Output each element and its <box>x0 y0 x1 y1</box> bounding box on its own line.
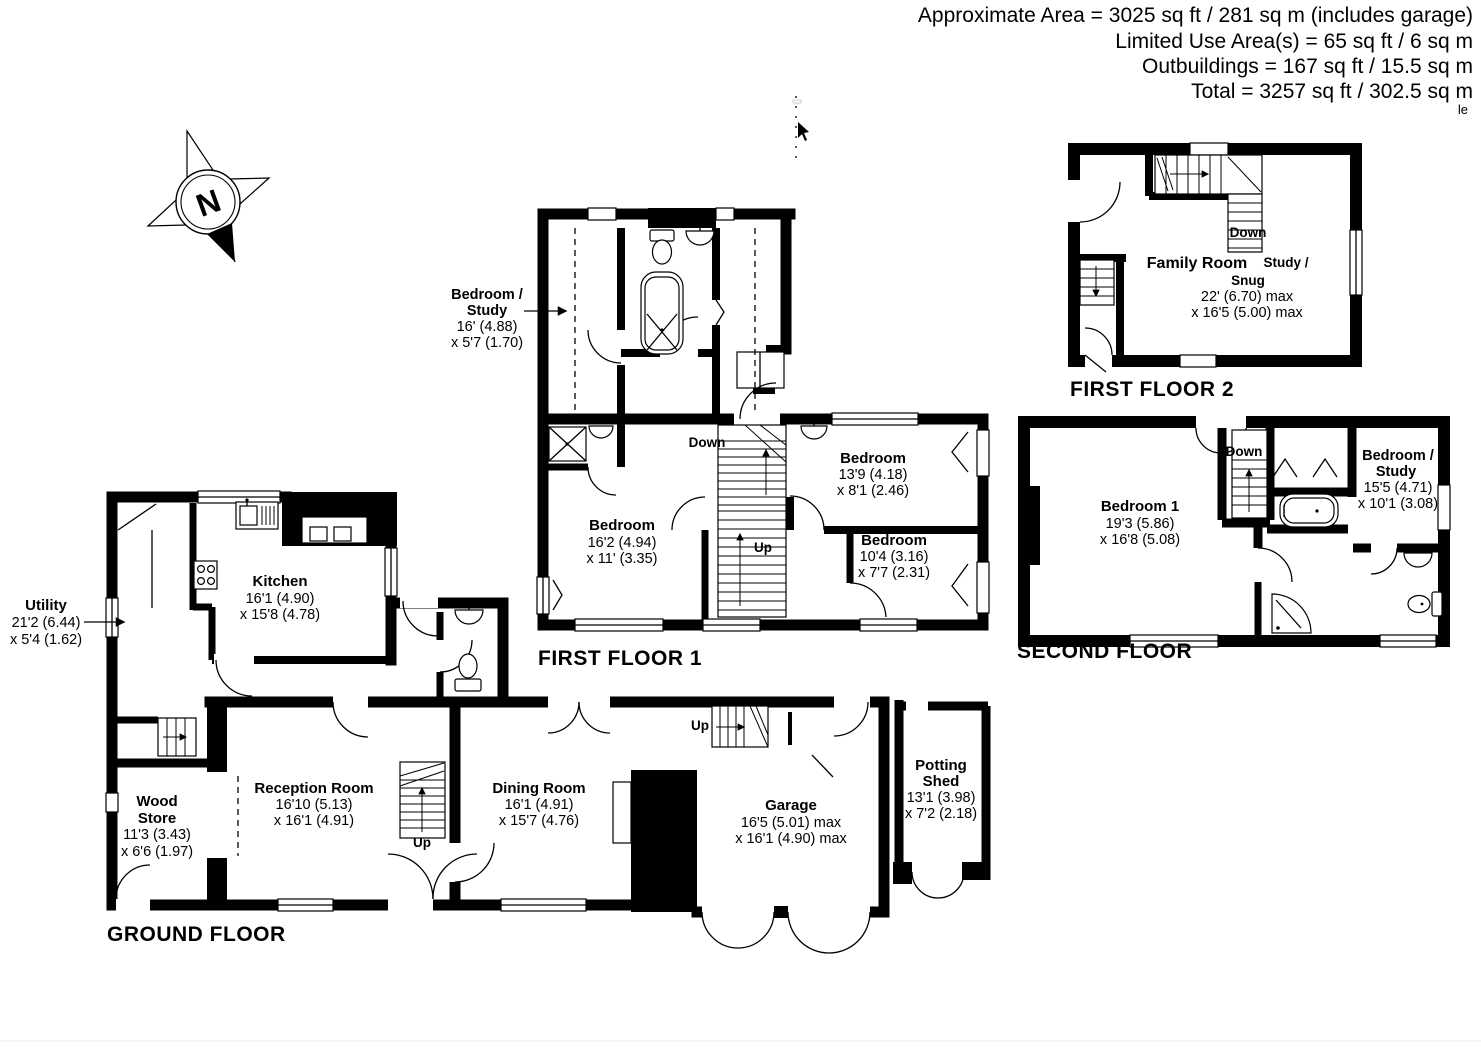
summary-line-2: Limited Use Area(s) = 65 sq ft / 6 sq m <box>1115 30 1473 53</box>
bath-icon <box>641 272 683 354</box>
stairs-label-down-ff2: Down <box>1230 225 1267 240</box>
room-label-garage-dim2: x 16'1 (4.90) max <box>735 831 847 847</box>
stairs-utility <box>158 718 196 756</box>
summary-line-4: Total = 3257 sq ft / 302.5 sq m <box>1191 80 1473 103</box>
first-floor-2-labels: Family Room Study / Snug 22' (6.70) max … <box>1070 225 1309 401</box>
room-label-reception-dim2: x 16'1 (4.91) <box>274 813 354 829</box>
label-ff2-family-name3: Snug <box>1231 273 1265 288</box>
label-sf-bedroom1-dim2: x 16'8 (5.08) <box>1100 532 1180 548</box>
second-floor-chimney-nib <box>1018 486 1040 565</box>
room-label-kitchen-dim2: x 15'8 (4.78) <box>240 607 320 623</box>
label-ff1-bedbr-dim1: 10'4 (3.16) <box>860 549 929 565</box>
wc-sink-icon <box>455 606 483 624</box>
room-label-utility-name: Utility <box>25 597 67 614</box>
label-ff1-bedbr-dim2: x 7'7 (2.31) <box>858 565 930 581</box>
floorplan-page: Approximate Area = 3025 sq ft / 281 sq m… <box>0 0 1481 1048</box>
kitchen-sink-icon <box>236 498 278 529</box>
floor-title-second: SECOND FLOOR <box>1017 640 1192 663</box>
label-ff1-bedleft-dim2: x 11' (3.35) <box>586 551 657 567</box>
sink-icon <box>589 426 613 438</box>
room-label-garage-name: Garage <box>765 797 817 814</box>
label-ff2-family-name2: Study / <box>1263 255 1308 270</box>
wc-toilet-icon <box>455 654 481 691</box>
first-floor-1-labels: Bedroom / Study 16' (4.88) x 5'7 (1.70) … <box>451 287 930 670</box>
room-label-woodstore-name1: Wood <box>136 793 177 810</box>
compass-icon: N <box>148 131 269 262</box>
cursor-artifact <box>793 96 809 158</box>
label-ff1-bedbr-name: Bedroom <box>861 532 927 549</box>
room-label-reception-name: Reception Room <box>254 780 373 797</box>
room-label-woodstore-dim1: 11'3 (3.43) <box>123 827 191 843</box>
room-label-woodstore-name2: Store <box>138 810 176 827</box>
label-ff2-family-dim1: 22' (6.70) max <box>1201 289 1294 305</box>
stairs-reception <box>400 762 445 838</box>
stairs-ff1 <box>718 425 786 617</box>
room-label-dining-name: Dining Room <box>492 780 585 797</box>
stairs-label-down-second: Down <box>1226 444 1263 459</box>
toilet-icon <box>650 230 674 264</box>
toilet-icon <box>1408 592 1442 616</box>
label-sf-bedstudy-name2: Study <box>1376 464 1416 480</box>
area-summary: Approximate Area = 3025 sq ft / 281 sq m… <box>918 4 1473 117</box>
label-ff2-family-name1: Family Room <box>1147 255 1247 272</box>
room-label-woodstore-dim2: x 6'6 (1.97) <box>121 844 193 860</box>
shower-icon <box>549 427 586 461</box>
room-label-utility-dim2: x 5'4 (1.62) <box>10 632 82 648</box>
room-label-garage-dim1: 16'5 (5.01) max <box>741 815 842 831</box>
floor-title-ff1: FIRST FLOOR 1 <box>538 647 702 670</box>
summary-line-3: Outbuildings = 167 sq ft / 15.5 sq m <box>1142 55 1473 78</box>
bath-icon <box>1280 494 1338 527</box>
sink-icon <box>686 227 714 245</box>
label-sf-bedstudy-dim1: 15'5 (4.71) <box>1364 480 1433 496</box>
label-ff1-bedstudy-dim2: x 5'7 (1.70) <box>451 335 523 351</box>
room-label-pottingshed-name2: Shed <box>923 773 960 790</box>
stairs-label-up-ff1: Up <box>754 540 772 555</box>
stairs-label-up-garage: Up <box>691 718 709 733</box>
label-ff1-bedleft-dim1: 16'2 (4.94) <box>588 535 657 551</box>
floorplan-drawing: Approximate Area = 3025 sq ft / 281 sq m… <box>0 0 1481 1048</box>
room-label-dining-dim2: x 15'7 (4.76) <box>499 813 579 829</box>
room-label-pottingshed-name1: Potting <box>915 757 967 774</box>
room-label-reception-dim1: 16'10 (5.13) <box>276 797 353 813</box>
room-label-utility-dim1: 21'2 (6.44) <box>12 615 81 631</box>
summary-line-1: Approximate Area = 3025 sq ft / 281 sq m… <box>918 4 1473 27</box>
stairs-label-up-reception: Up <box>413 835 431 850</box>
room-label-kitchen-name: Kitchen <box>252 573 307 590</box>
label-ff2-family-dim2: x 16'5 (5.00) max <box>1191 305 1303 321</box>
label-ff1-bedleft-name: Bedroom <box>589 517 655 534</box>
label-ff1-bedstudy-name1: Bedroom / <box>451 287 523 303</box>
label-sf-bedstudy-name1: Bedroom / <box>1362 448 1434 464</box>
room-label-pottingshed-dim1: 13'1 (3.98) <box>907 790 976 806</box>
bedroom-sink-icon <box>801 422 827 439</box>
room-label-kitchen-dim1: 16'1 (4.90) <box>246 591 315 607</box>
stairs-garage <box>712 706 768 747</box>
label-ff1-bedstudy-dim1: 16' (4.88) <box>457 319 518 335</box>
wardrobe-chevron-marks <box>1273 459 1337 477</box>
stairs-label-down-ff1: Down <box>689 435 726 450</box>
label-sf-bedstudy-dim2: x 10'1 (3.08) <box>1358 496 1438 512</box>
page-edge-artifact <box>0 1040 1481 1042</box>
room-label-dining-dim1: 16'1 (4.91) <box>505 797 574 813</box>
floor-title-ground: GROUND FLOOR <box>107 923 286 946</box>
second-floor-labels: Bedroom 1 19'3 (5.86) x 16'8 (5.08) Bedr… <box>1017 444 1438 663</box>
watermark-fragment: le <box>1458 102 1468 117</box>
hob-icon <box>194 561 217 589</box>
stairs-ff2-lower <box>1080 260 1114 305</box>
label-ff1-bedtr-name: Bedroom <box>840 450 906 467</box>
floor-title-ff2: FIRST FLOOR 2 <box>1070 378 1234 401</box>
label-ff1-bedstudy-name2: Study <box>467 303 507 319</box>
label-sf-bedroom1-name: Bedroom 1 <box>1101 498 1179 515</box>
mouse-cursor-icon <box>798 122 809 141</box>
label-ff1-bedtr-dim2: x 8'1 (2.46) <box>837 483 909 499</box>
room-label-pottingshed-dim2: x 7'2 (2.18) <box>905 806 977 822</box>
dining-chimney-breast <box>631 770 697 912</box>
label-ff1-bedtr-dim1: 13'9 (4.18) <box>839 467 908 483</box>
label-sf-bedroom1-dim1: 19'3 (5.86) <box>1106 516 1175 532</box>
shower-icon <box>1272 594 1311 633</box>
